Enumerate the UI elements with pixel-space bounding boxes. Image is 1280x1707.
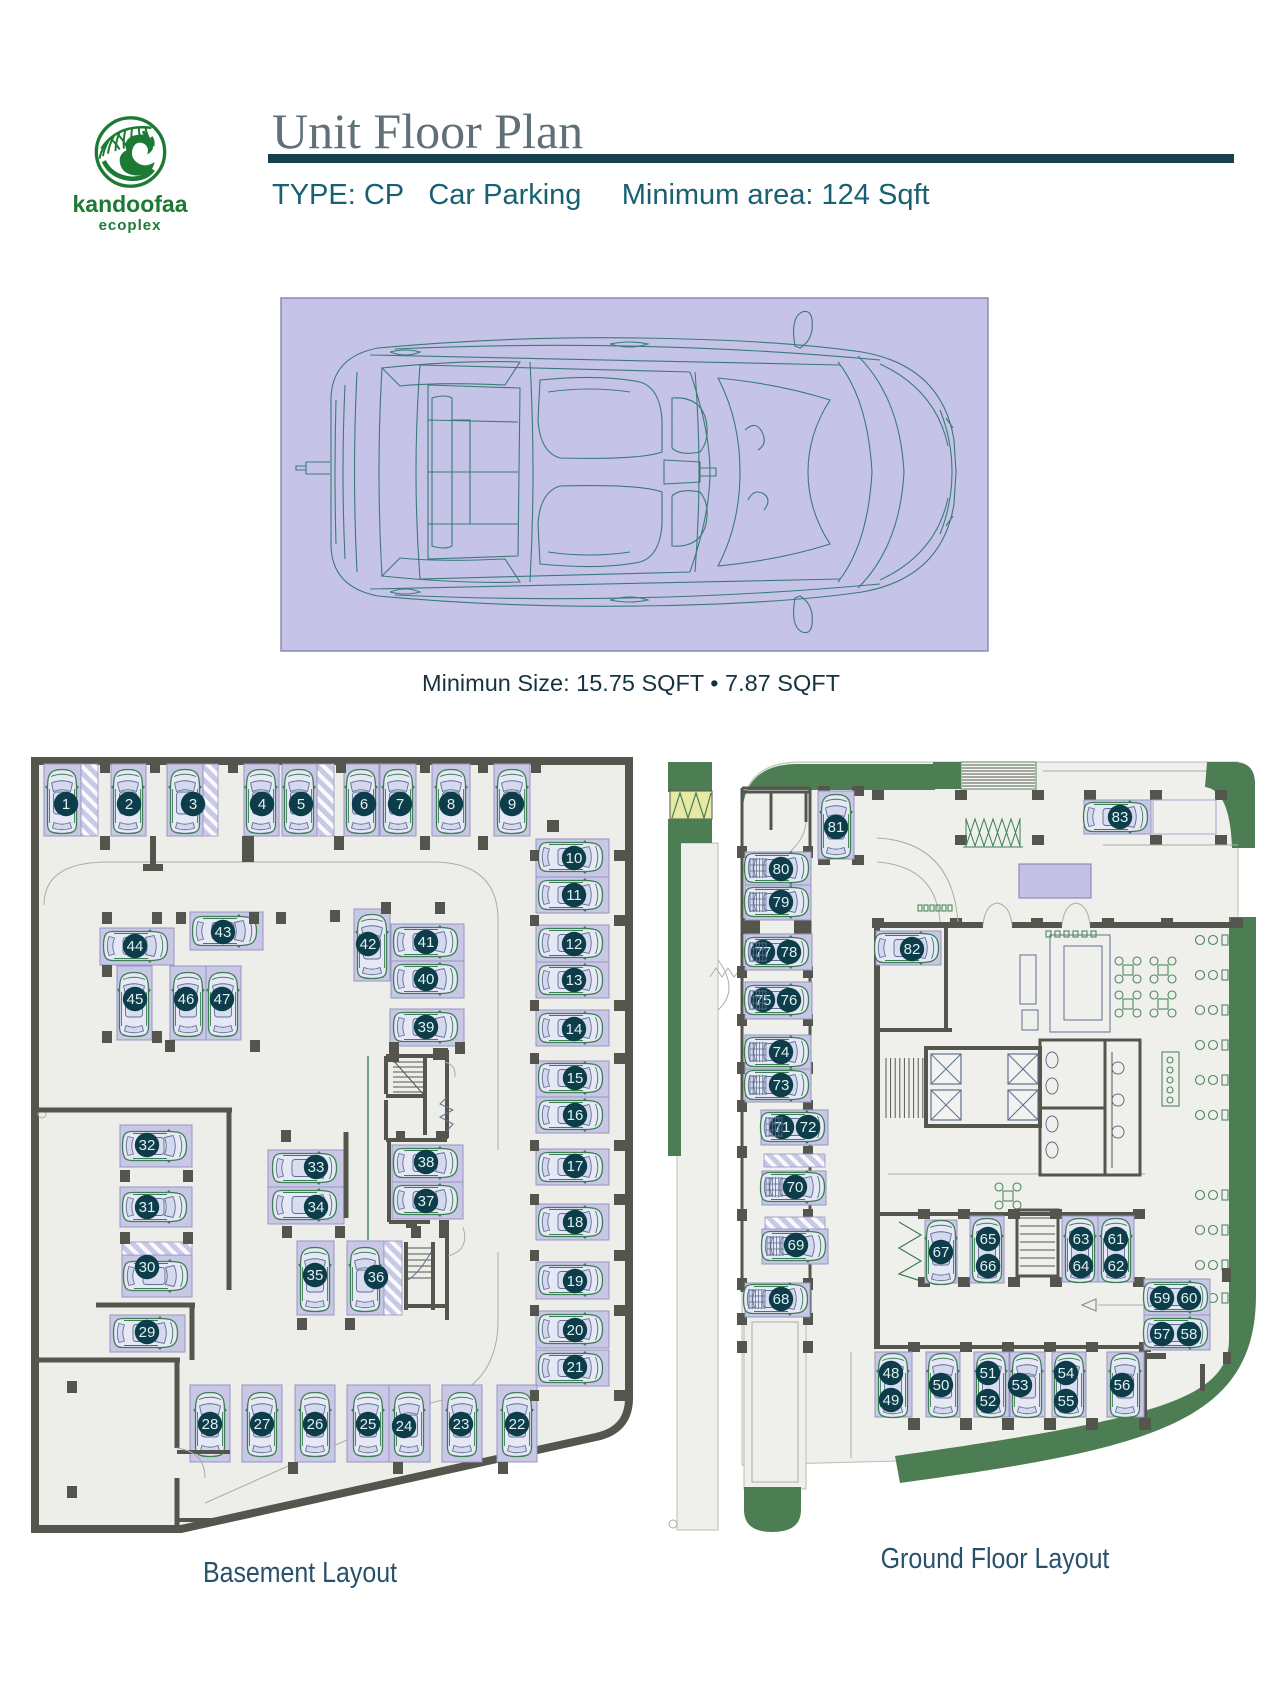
svg-text:24: 24 — [396, 1418, 413, 1435]
svg-text:55: 55 — [1058, 1393, 1075, 1410]
svg-text:4: 4 — [258, 796, 266, 813]
svg-text:21: 21 — [567, 1359, 584, 1376]
svg-text:36: 36 — [368, 1269, 385, 1286]
svg-text:79: 79 — [773, 894, 790, 911]
svg-text:42: 42 — [360, 936, 377, 953]
svg-text:59: 59 — [1154, 1290, 1171, 1307]
svg-text:62: 62 — [1108, 1258, 1125, 1275]
svg-text:26: 26 — [307, 1416, 324, 1433]
svg-text:70: 70 — [787, 1179, 804, 1196]
svg-text:39: 39 — [418, 1019, 435, 1036]
svg-text:31: 31 — [139, 1199, 156, 1216]
svg-text:6: 6 — [360, 796, 368, 813]
svg-text:23: 23 — [453, 1416, 470, 1433]
svg-text:15: 15 — [567, 1070, 584, 1087]
svg-text:48: 48 — [883, 1365, 900, 1382]
svg-text:30: 30 — [139, 1259, 156, 1276]
svg-text:54: 54 — [1058, 1365, 1075, 1382]
svg-text:11: 11 — [566, 887, 582, 904]
svg-text:76: 76 — [781, 992, 798, 1009]
svg-text:64: 64 — [1073, 1258, 1090, 1275]
svg-text:49: 49 — [883, 1392, 900, 1409]
svg-text:63: 63 — [1073, 1231, 1090, 1248]
svg-text:19: 19 — [567, 1273, 584, 1290]
svg-text:32: 32 — [139, 1137, 156, 1154]
svg-text:33: 33 — [308, 1159, 325, 1176]
svg-text:5: 5 — [297, 796, 305, 813]
svg-text:53: 53 — [1012, 1377, 1029, 1394]
svg-text:81: 81 — [828, 819, 845, 836]
svg-text:45: 45 — [127, 991, 144, 1008]
svg-text:20: 20 — [567, 1322, 584, 1339]
svg-text:69: 69 — [788, 1237, 805, 1254]
svg-text:66: 66 — [980, 1258, 997, 1275]
svg-text:58: 58 — [1181, 1326, 1198, 1343]
svg-text:9: 9 — [508, 796, 516, 813]
svg-text:83: 83 — [1112, 809, 1129, 826]
svg-text:40: 40 — [418, 971, 435, 988]
svg-text:44: 44 — [127, 938, 144, 955]
svg-text:74: 74 — [773, 1044, 790, 1061]
svg-text:73: 73 — [773, 1077, 790, 1094]
svg-text:29: 29 — [139, 1324, 156, 1341]
svg-text:82: 82 — [904, 941, 921, 958]
svg-text:34: 34 — [308, 1199, 325, 1216]
svg-text:50: 50 — [933, 1377, 950, 1394]
svg-text:41: 41 — [418, 934, 435, 951]
svg-text:57: 57 — [1154, 1326, 1171, 1343]
svg-text:10: 10 — [566, 850, 583, 867]
svg-text:80: 80 — [773, 861, 790, 878]
svg-text:38: 38 — [418, 1154, 435, 1171]
svg-text:2: 2 — [125, 796, 133, 813]
svg-text:25: 25 — [360, 1416, 377, 1433]
svg-text:52: 52 — [980, 1393, 997, 1410]
svg-text:78: 78 — [781, 944, 798, 961]
svg-text:68: 68 — [773, 1291, 790, 1308]
svg-text:65: 65 — [980, 1231, 997, 1248]
svg-text:22: 22 — [509, 1416, 526, 1433]
svg-text:72: 72 — [800, 1119, 817, 1136]
svg-text:37: 37 — [418, 1193, 435, 1210]
svg-text:47: 47 — [214, 991, 231, 1008]
svg-text:51: 51 — [980, 1365, 997, 1382]
svg-text:67: 67 — [933, 1244, 950, 1261]
svg-text:60: 60 — [1181, 1290, 1198, 1307]
svg-text:61: 61 — [1108, 1231, 1125, 1248]
svg-text:12: 12 — [566, 936, 583, 953]
svg-text:35: 35 — [307, 1267, 324, 1284]
svg-text:56: 56 — [1114, 1377, 1131, 1394]
svg-text:16: 16 — [567, 1107, 584, 1124]
svg-text:13: 13 — [566, 972, 583, 989]
svg-text:17: 17 — [567, 1158, 584, 1175]
svg-text:7: 7 — [396, 796, 404, 813]
svg-text:43: 43 — [215, 924, 232, 941]
svg-text:18: 18 — [567, 1214, 584, 1231]
svg-text:3: 3 — [189, 796, 197, 813]
svg-text:1: 1 — [62, 796, 70, 813]
svg-text:46: 46 — [178, 991, 195, 1008]
svg-text:14: 14 — [566, 1021, 583, 1038]
svg-text:8: 8 — [447, 796, 455, 813]
svg-text:27: 27 — [254, 1416, 271, 1433]
svg-text:28: 28 — [202, 1416, 219, 1433]
